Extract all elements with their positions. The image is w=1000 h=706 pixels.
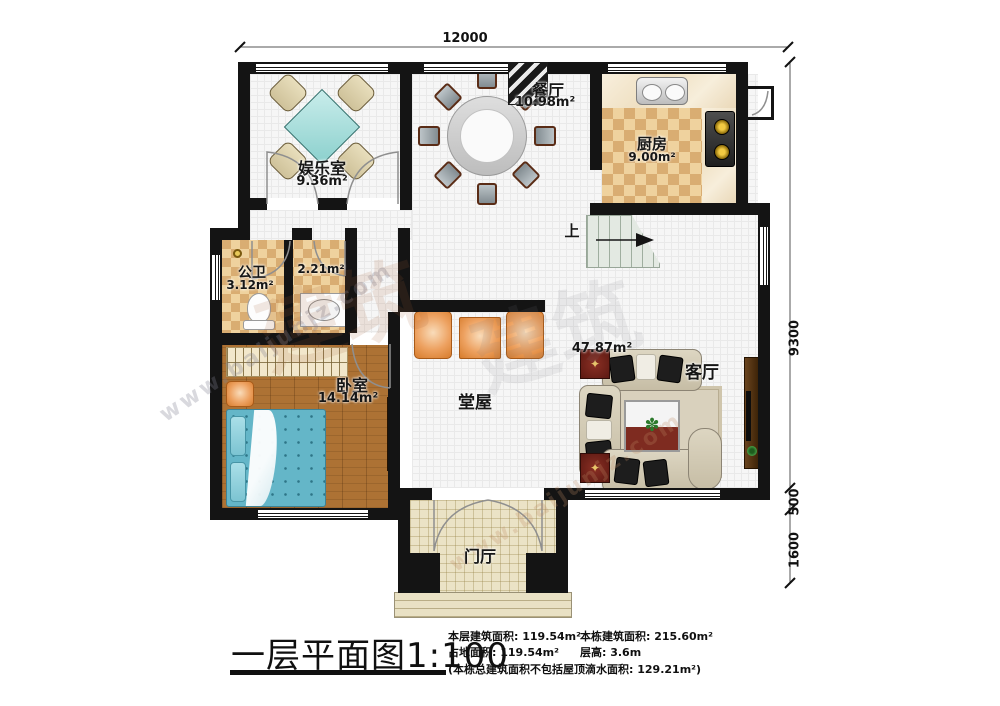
- armchair: [414, 311, 452, 359]
- area-label-washroom: 2.21m²: [297, 262, 344, 276]
- window: [608, 62, 726, 74]
- window: [256, 62, 388, 74]
- window: [210, 255, 222, 300]
- kitchen-sink: [636, 77, 688, 105]
- wall-segment: [748, 117, 774, 120]
- room-label-hall: 堂屋: [458, 388, 492, 413]
- wall-segment: [736, 62, 748, 203]
- pillow: [230, 416, 246, 456]
- wall-segment: [318, 198, 347, 210]
- toilet-tank: [243, 320, 275, 330]
- stat-floor-area: 本层建筑面积: 119.54m²: [448, 628, 581, 644]
- tea-table: [459, 317, 501, 359]
- window: [758, 227, 770, 285]
- wall-segment: [345, 228, 357, 333]
- porch-steps: [394, 592, 572, 618]
- wall-segment: [210, 508, 258, 520]
- wall-segment: [758, 203, 770, 227]
- plant: [747, 446, 757, 456]
- washbasin: [308, 299, 340, 321]
- area-label-dining: 10.98m²: [515, 95, 575, 110]
- armchair: [506, 311, 544, 359]
- shower-fitting: [233, 249, 242, 258]
- window: [424, 62, 508, 74]
- dimension-label-top: 12000: [442, 31, 487, 46]
- stat-note: (本栋总建筑面积不包括屋顶滴水面积: 129.21m²): [448, 661, 701, 677]
- wall-segment: [368, 508, 400, 520]
- kitchen-stove: [705, 111, 735, 167]
- wall-segment: [720, 488, 770, 500]
- pillar: [526, 553, 568, 593]
- floor-plan-canvas: ✽ ✦ ✦: [0, 0, 1000, 706]
- sofa-chaise: [688, 428, 722, 490]
- stat-total-area: 本栋建筑面积: 215.60m²: [580, 628, 713, 644]
- dining-chair: [534, 126, 556, 146]
- nightstand: [226, 381, 254, 407]
- wall-segment: [210, 333, 350, 345]
- wall-segment: [590, 62, 602, 170]
- wall-segment: [758, 285, 770, 500]
- corridor-floor: [250, 210, 412, 240]
- area-label-entertainment: 9.36m²: [296, 174, 347, 189]
- wall-segment: [590, 203, 770, 215]
- stat-floor-height: 层高: 3.6m: [580, 644, 641, 660]
- area-label-kitchen: 9.00m²: [628, 150, 675, 164]
- pillow: [230, 462, 246, 502]
- wall-segment: [210, 240, 222, 255]
- wall-segment: [398, 300, 545, 312]
- window: [585, 488, 720, 500]
- wall-segment: [400, 62, 412, 210]
- toilet: [247, 293, 271, 323]
- wall-segment: [398, 500, 410, 553]
- wall-segment: [284, 240, 293, 333]
- dining-table-top: [460, 109, 514, 163]
- coffee-table: ✽: [624, 400, 680, 452]
- dimension-label-right-main: 9300: [788, 320, 803, 356]
- wall-segment: [210, 228, 250, 240]
- living-tv: [746, 391, 751, 441]
- area-label-bathroom: 3.12m²: [226, 278, 273, 292]
- wall-segment: [544, 488, 585, 500]
- wall-segment: [388, 312, 400, 345]
- dining-chair: [477, 183, 497, 205]
- side-table: ✦: [580, 453, 610, 483]
- stairs-up-label: 上: [564, 220, 579, 241]
- window: [258, 508, 368, 520]
- dimension-label-right-step: 500: [788, 488, 803, 515]
- wall-segment: [556, 500, 568, 553]
- stat-land-area: 占地面积: 119.54m²: [448, 644, 559, 660]
- wall-segment: [771, 86, 774, 120]
- dining-chair: [418, 126, 440, 146]
- room-label-foyer: 门厅: [464, 543, 496, 567]
- room-label-living: 客厅: [685, 358, 719, 383]
- area-label-bedroom: 14.14m²: [318, 391, 378, 406]
- wall-segment: [238, 198, 267, 210]
- wall-segment: [388, 345, 400, 508]
- title-underline: [230, 670, 446, 675]
- pillar: [398, 553, 440, 593]
- wall-segment: [292, 228, 312, 240]
- dimension-label-right-porch: 1600: [788, 532, 803, 568]
- wall-segment: [396, 488, 432, 500]
- area-label-living: 47.87m²: [572, 341, 632, 356]
- wardrobe: [226, 347, 348, 377]
